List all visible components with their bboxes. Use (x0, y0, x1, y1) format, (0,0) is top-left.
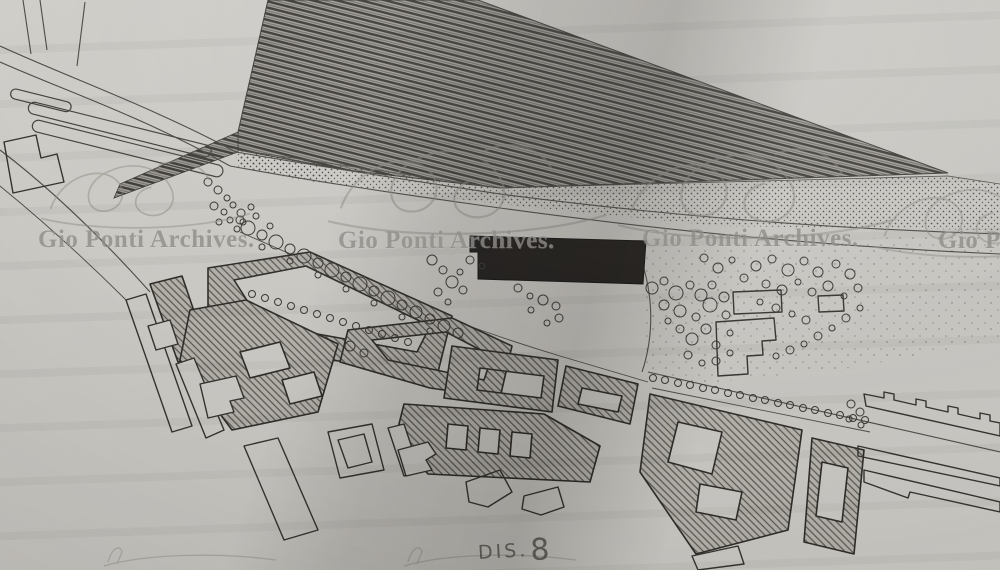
watermark-text: Gio Ponti Archives. (642, 225, 859, 253)
urban-block (804, 438, 864, 554)
watermark-text: Gio Ponti Archives. (938, 227, 1000, 255)
urban-block (558, 366, 638, 424)
drawing-number-annotation: DIS.8 (477, 532, 550, 570)
crenellated-building-outline (864, 392, 1000, 436)
watermark-text: Gio Ponti Archives. (338, 227, 555, 255)
archival-site-plan-photo: Gio Ponti Archives. Gio Ponti Archives. … (0, 0, 1000, 570)
tree-cluster-upper-left (204, 178, 254, 232)
urban-block (640, 394, 802, 554)
site-plan-drawing (0, 0, 1000, 570)
tree-cluster-south-of-slab (514, 284, 563, 326)
drawing-number-value: 8 (529, 532, 550, 568)
watermark-text: Gio Ponti Archives. (38, 226, 255, 254)
tree-cluster-west-of-slab (427, 255, 485, 305)
drawing-number-prefix: DIS. (477, 539, 528, 564)
railway-yard-tracks (114, 0, 948, 198)
